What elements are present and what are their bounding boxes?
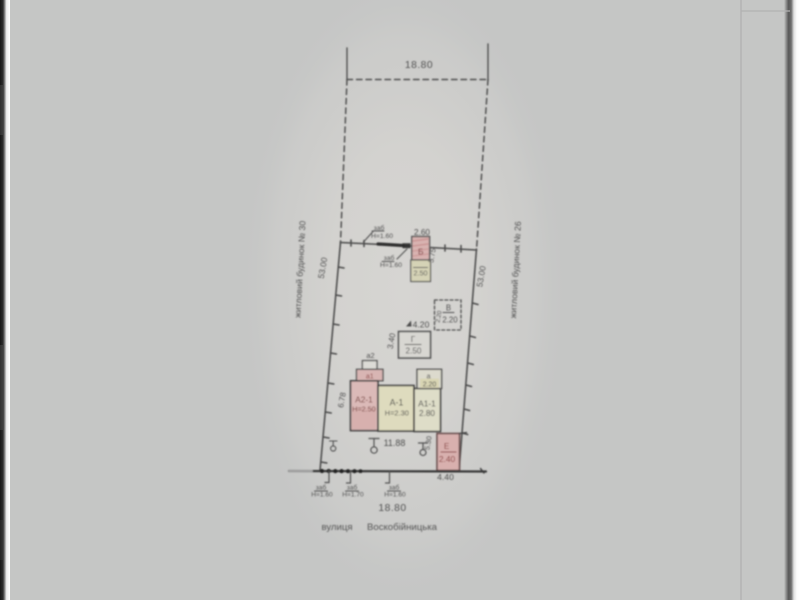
svg-text:а1: а1 bbox=[366, 374, 374, 381]
svg-text:а2: а2 bbox=[366, 351, 374, 360]
svg-text:Н=2.30: Н=2.30 bbox=[385, 409, 409, 418]
svg-text:2.60: 2.60 bbox=[414, 228, 430, 237]
svg-text:4.40: 4.40 bbox=[437, 472, 454, 482]
svg-text:Г: Г bbox=[411, 335, 416, 344]
svg-text:Е: Е bbox=[444, 442, 449, 451]
svg-text:Н=1.60: Н=1.60 bbox=[380, 262, 402, 269]
svg-text:4.20: 4.20 bbox=[413, 320, 430, 330]
svg-text:А2-1: А2-1 bbox=[355, 395, 373, 405]
svg-text:2.80: 2.80 bbox=[419, 409, 435, 418]
svg-text:11.88: 11.88 bbox=[384, 438, 406, 448]
svg-text:В: В bbox=[446, 304, 451, 313]
svg-text:заб: заб bbox=[384, 254, 395, 262]
svg-text:Воскобійницька: Воскобійницька bbox=[367, 522, 438, 533]
svg-text:Б: Б bbox=[418, 247, 424, 257]
svg-text:2.50: 2.50 bbox=[414, 269, 428, 278]
svg-text:Н=1.60: Н=1.60 bbox=[384, 492, 406, 499]
svg-text:2.20: 2.20 bbox=[442, 316, 458, 325]
svg-text:А1-1: А1-1 bbox=[418, 399, 436, 409]
svg-text:заб: заб bbox=[316, 484, 327, 492]
svg-text:2.50: 2.50 bbox=[406, 347, 422, 356]
svg-text:А-1: А-1 bbox=[390, 398, 404, 408]
svg-text:Н=1.60: Н=1.60 bbox=[311, 492, 333, 499]
svg-text:Н=2.50: Н=2.50 bbox=[352, 405, 375, 414]
svg-text:Н=1.70: Н=1.70 bbox=[342, 492, 364, 499]
svg-text:вулиця: вулиця bbox=[321, 522, 352, 533]
svg-text:18.80: 18.80 bbox=[405, 60, 433, 71]
svg-text:18.80: 18.80 bbox=[378, 503, 406, 514]
svg-text:2.40: 2.40 bbox=[439, 454, 456, 464]
svg-text:2.20: 2.20 bbox=[423, 382, 437, 389]
svg-text:заб: заб bbox=[347, 484, 358, 492]
svg-text:Н=1.60: Н=1.60 bbox=[371, 233, 393, 240]
svg-text:заб: заб bbox=[389, 484, 400, 492]
